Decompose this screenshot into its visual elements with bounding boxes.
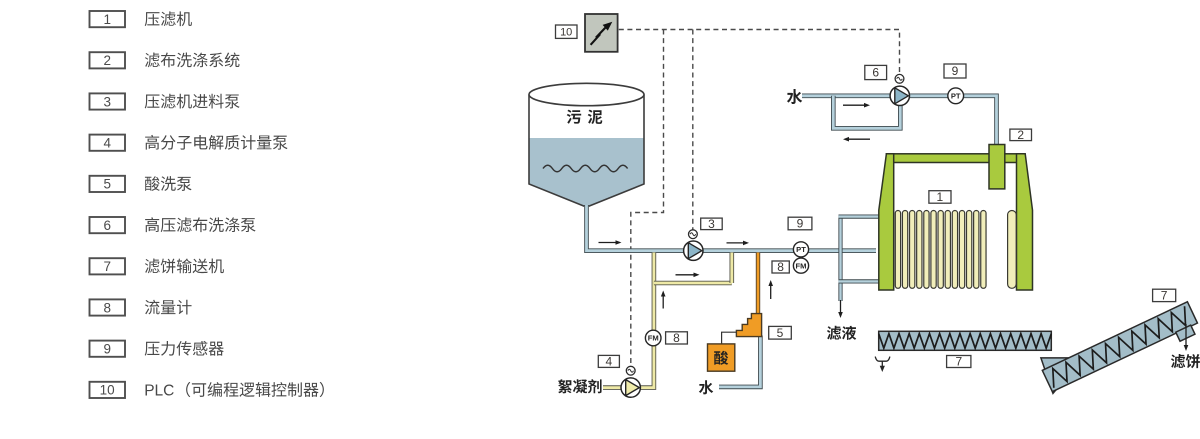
svg-text:7: 7	[955, 355, 962, 369]
svg-text:9: 9	[797, 217, 804, 231]
svg-text:1: 1	[937, 190, 944, 204]
svg-text:2: 2	[103, 53, 111, 68]
svg-text:1: 1	[103, 12, 111, 27]
svg-text:8: 8	[673, 331, 680, 345]
svg-text:7: 7	[103, 259, 111, 274]
svg-text:FM: FM	[648, 334, 659, 343]
svg-text:FM: FM	[796, 261, 807, 270]
svg-text:6: 6	[103, 218, 111, 233]
svg-text:4: 4	[605, 355, 612, 369]
svg-text:5: 5	[777, 326, 784, 340]
svg-text:4: 4	[103, 136, 111, 151]
svg-text:5: 5	[103, 177, 111, 192]
svg-text:8: 8	[777, 260, 784, 274]
svg-text:8: 8	[103, 300, 111, 315]
svg-text:9: 9	[103, 342, 111, 357]
svg-text:2: 2	[1017, 128, 1024, 142]
svg-text:9: 9	[952, 64, 959, 78]
svg-text:3: 3	[708, 217, 715, 231]
svg-text:10: 10	[100, 383, 115, 398]
svg-text:3: 3	[103, 94, 111, 109]
svg-text:PLC: PLC	[144, 383, 174, 400]
svg-text:6: 6	[872, 66, 879, 80]
svg-text:PT: PT	[951, 92, 961, 101]
svg-text:7: 7	[1161, 289, 1168, 303]
svg-text:PT: PT	[796, 245, 806, 254]
svg-text:10: 10	[560, 27, 572, 39]
